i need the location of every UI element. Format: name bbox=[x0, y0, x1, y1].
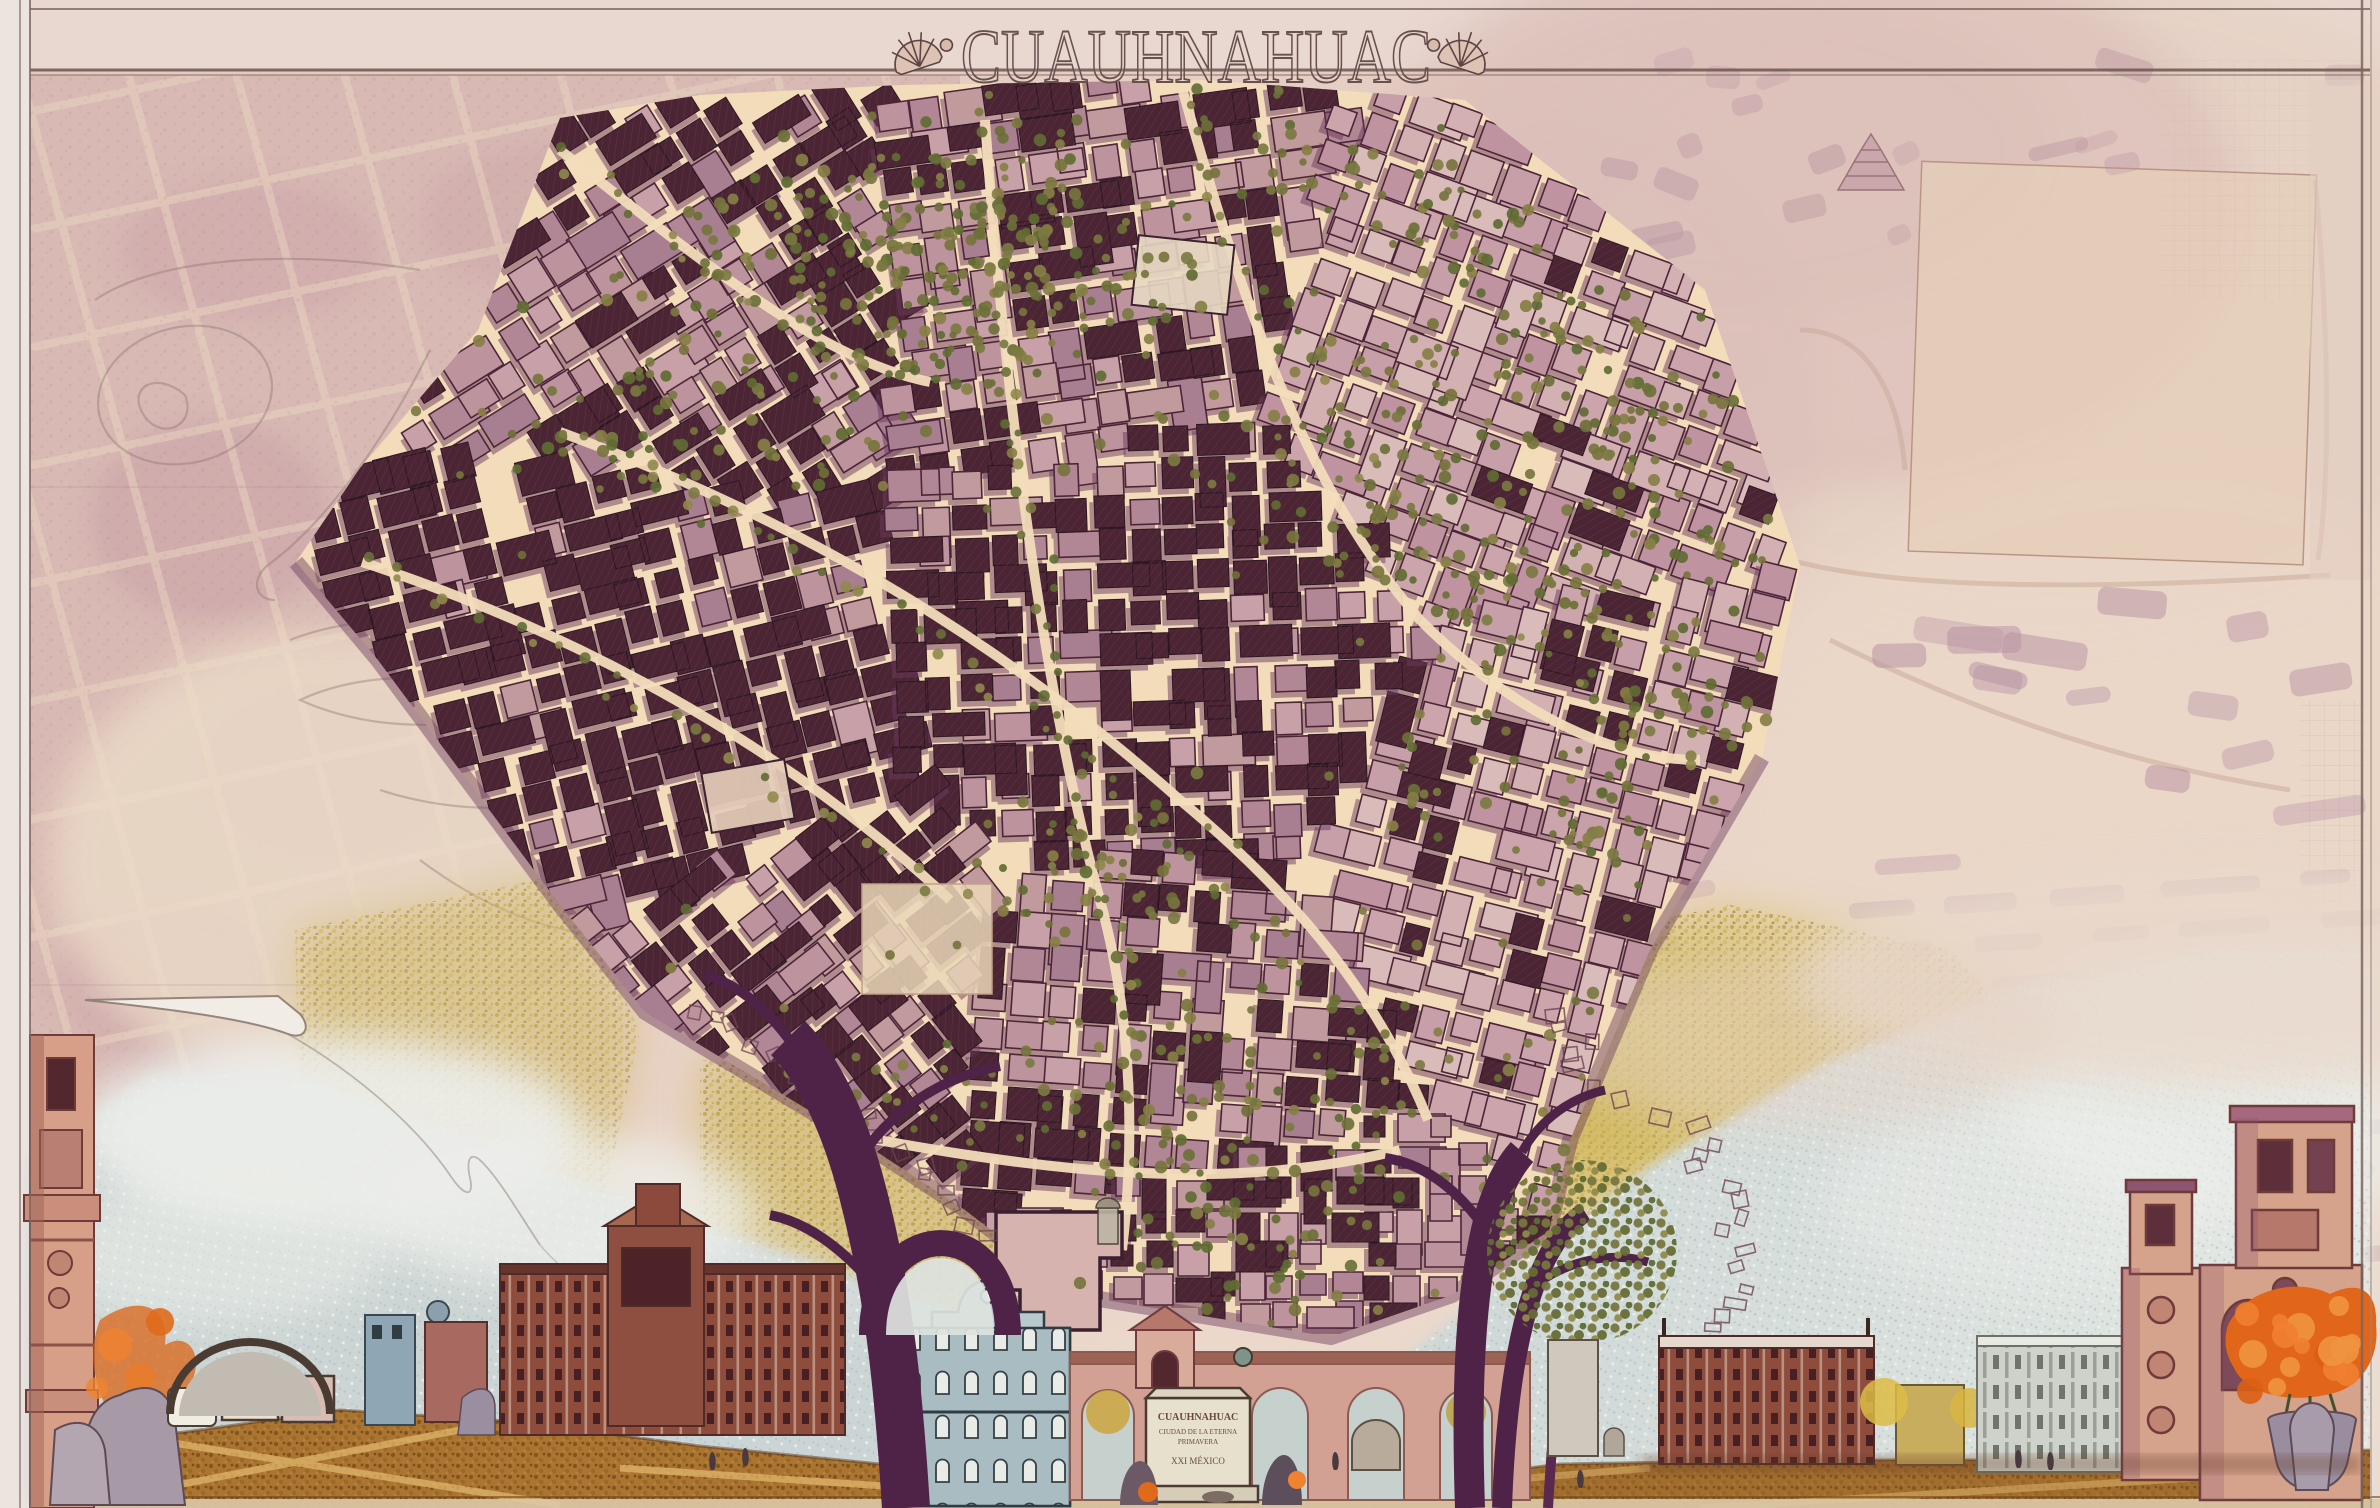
svg-text:CUAUHNAHUAC: CUAUHNAHUAC bbox=[1158, 1412, 1239, 1423]
svg-text:CUAUHNAHUAC: CUAUHNAHUAC bbox=[961, 15, 1431, 99]
svg-text:CIUDAD DE LA ETERNA: CIUDAD DE LA ETERNA bbox=[1159, 1428, 1237, 1436]
svg-text:XXI MÉXICO: XXI MÉXICO bbox=[1171, 1456, 1225, 1466]
svg-text:PRIMAVERA: PRIMAVERA bbox=[1178, 1438, 1218, 1446]
